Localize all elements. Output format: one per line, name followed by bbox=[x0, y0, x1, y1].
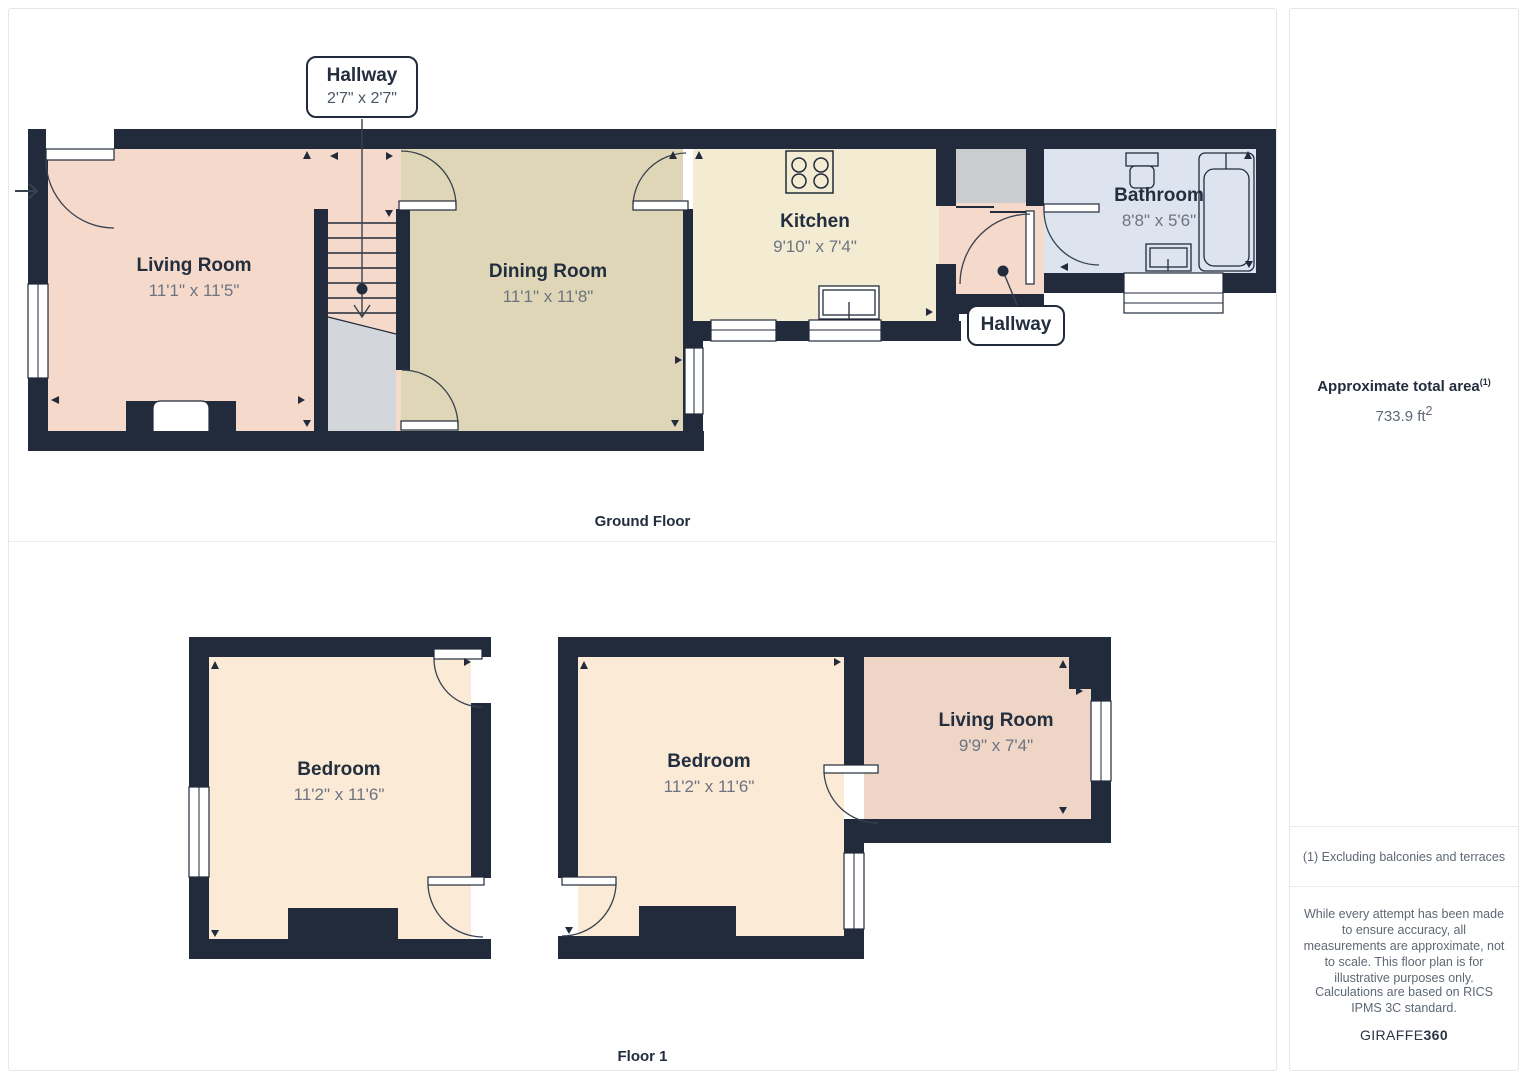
total-area-block: Approximate total area(1) 733.9 ft2 bbox=[1290, 377, 1518, 425]
f1-bedroom1-area bbox=[209, 657, 471, 939]
gf-under-stairs-area bbox=[328, 317, 396, 431]
callout-anchor-dot bbox=[998, 266, 1009, 277]
sidebar-divider bbox=[1290, 886, 1518, 887]
toilet-icon bbox=[1126, 153, 1158, 188]
callout-hallway-rear: Hallway bbox=[967, 305, 1065, 346]
bedroom1-door-top bbox=[434, 649, 482, 659]
f1-living-room-area bbox=[864, 657, 1091, 819]
f1-bedroom1-chimney bbox=[288, 908, 398, 939]
hallway-door bbox=[1026, 211, 1034, 284]
bedroom1-door-bottom bbox=[428, 877, 484, 885]
bathtub-icon bbox=[1199, 153, 1254, 271]
footnote-marker: (1) bbox=[1480, 377, 1491, 387]
disclaimer-text: While every attempt has been made to ens… bbox=[1290, 906, 1518, 986]
summary-sidebar: Approximate total area(1) 733.9 ft2 (1) … bbox=[1289, 8, 1519, 1071]
front-door bbox=[46, 149, 114, 160]
floor1-section: Bedroom 11'2" x 11'6" Bedroom 11'2" x 11… bbox=[9, 542, 1276, 1070]
dining-door-right bbox=[633, 201, 688, 210]
f1-living-door bbox=[824, 765, 878, 773]
under-stairs-door bbox=[401, 421, 458, 430]
floorplan-page: Living Room 11'1" x 11'5" Dining Room 11… bbox=[0, 0, 1527, 1080]
f1-bedroom2-chimney bbox=[639, 906, 736, 936]
floorplan-panel: Living Room 11'1" x 11'5" Dining Room 11… bbox=[8, 8, 1277, 1071]
dining-door-left bbox=[399, 201, 456, 210]
bedroom2-door bbox=[562, 877, 616, 885]
ground-floor-section: Living Room 11'1" x 11'5" Dining Room 11… bbox=[9, 9, 1276, 542]
f1-bedroom2-area bbox=[578, 657, 844, 936]
calculations-text: Calculations are based on RICS IPMS 3C s… bbox=[1290, 984, 1518, 1016]
gf-kitchen-area bbox=[693, 149, 939, 321]
bathroom-door bbox=[1044, 204, 1099, 212]
floor1-label: Floor 1 bbox=[9, 1048, 1276, 1065]
total-area-value: 733.9 ft2 bbox=[1290, 404, 1518, 425]
callout-hallway-stairs: Hallway 2'7" x 2'7" bbox=[306, 56, 418, 118]
floor1-plan bbox=[9, 542, 1278, 1070]
f1-living-notch bbox=[1069, 657, 1091, 689]
callout-anchor-dot bbox=[357, 284, 368, 295]
bathroom-sink-icon bbox=[1146, 244, 1191, 271]
sidebar-divider bbox=[1290, 826, 1518, 827]
ground-floor-plan bbox=[9, 9, 1278, 541]
gf-fireplace-recess bbox=[153, 401, 209, 431]
ground-floor-label: Ground Floor bbox=[9, 513, 1276, 530]
footnote-text: (1) Excluding balconies and terraces bbox=[1290, 849, 1518, 865]
gf-storage-area bbox=[949, 149, 1039, 209]
total-area-title: Approximate total area(1) bbox=[1290, 377, 1518, 395]
kitchen-sink-icon bbox=[819, 286, 879, 319]
giraffe360-logo: GIRAFFE360 bbox=[1290, 1027, 1518, 1043]
f1-room-fills bbox=[209, 657, 1091, 939]
